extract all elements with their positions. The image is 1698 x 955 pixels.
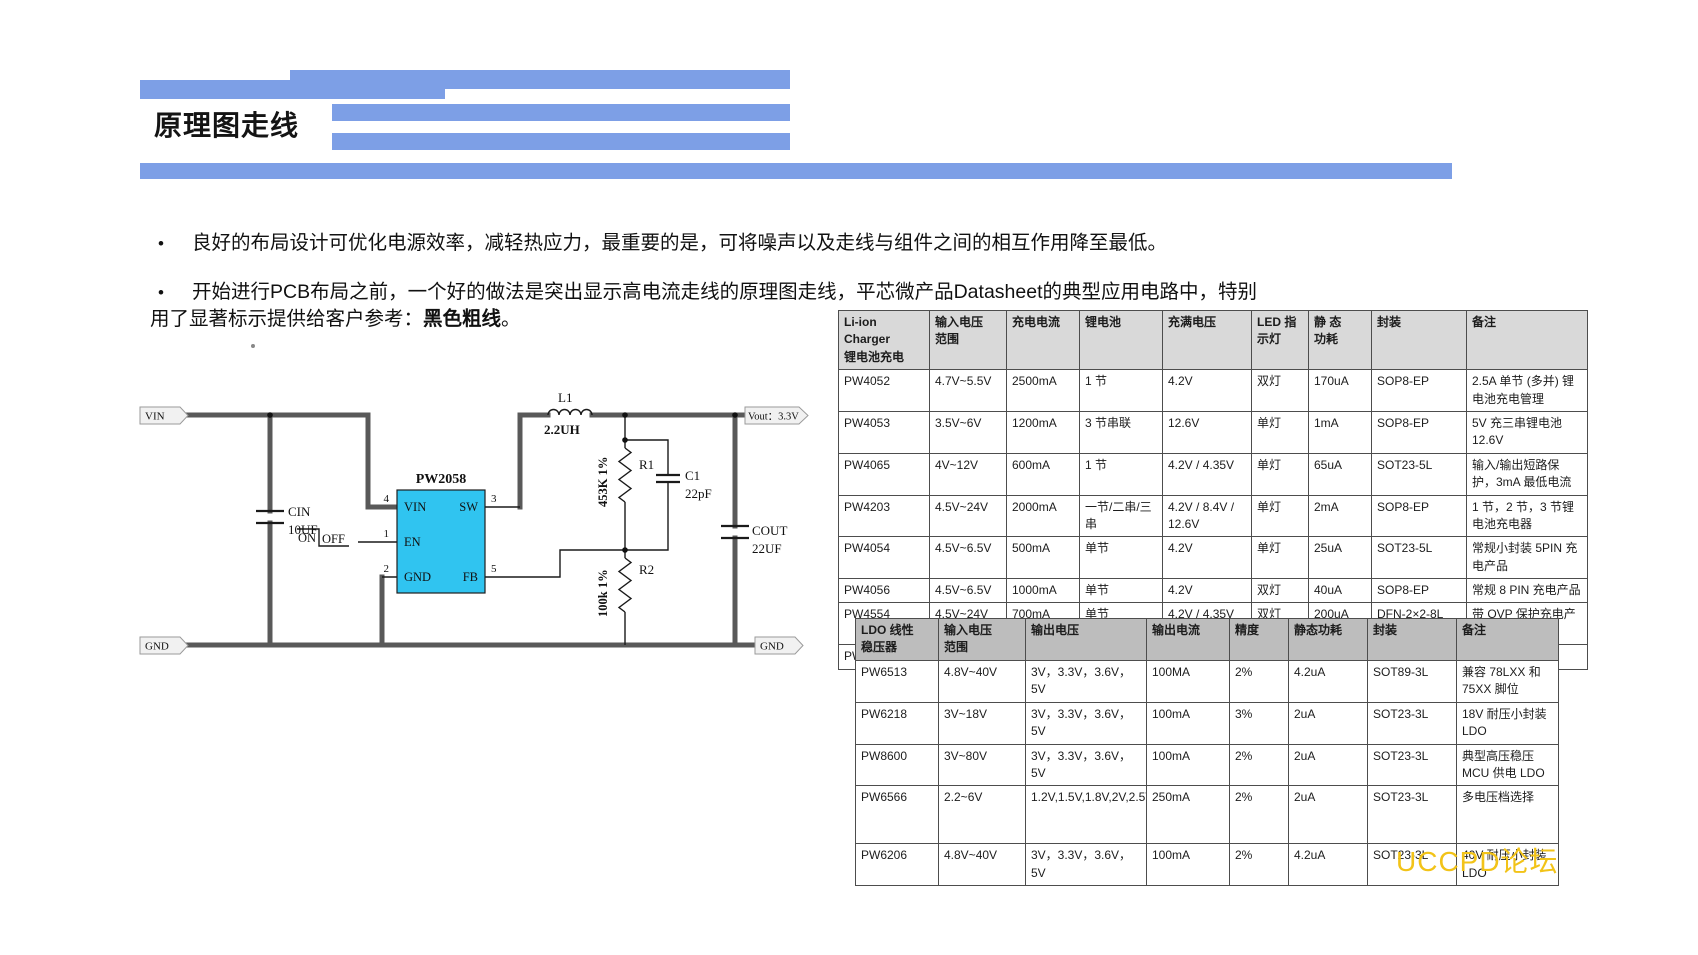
table-row: PW40533.5V~6V1200mA3 节串联12.6V单灯1mASOP8-E… — [839, 411, 1588, 453]
table-cell: 4.8V~40V — [939, 844, 1026, 886]
table-cell: 1mA — [1309, 411, 1372, 453]
table-cell: PW4052 — [839, 370, 930, 412]
table-cell: 3V，3.3V，3.6V，5V — [1026, 661, 1147, 703]
table-cell: 25uA — [1309, 537, 1372, 579]
table-cell: 4.2V / 8.4V / 12.6V — [1163, 495, 1252, 537]
c1-value-label: 22pF — [685, 486, 712, 501]
table-cell: PW8600 — [856, 744, 939, 786]
table-cell: 2% — [1230, 661, 1289, 703]
bullet-marker: • — [150, 279, 192, 306]
table-cell: 4V~12V — [930, 453, 1007, 495]
bullet-2-text-1: 开始进行PCB布局之前，一个好的做法是突出显示高电流走线的原理图走线，平芯微产品… — [192, 281, 1257, 303]
table-cell: 4.2V — [1163, 537, 1252, 579]
table-cell: SOT89-3L — [1368, 661, 1457, 703]
l1-ref-label: L1 — [558, 390, 572, 405]
table-cell: 单节 — [1080, 537, 1163, 579]
vout-port-label: Vout：3.3V — [748, 412, 799, 423]
cout-value-label: 22UF — [752, 541, 782, 556]
table-row: PW42034.5V~24V2000mA一节/二串/三串4.2V / 8.4V … — [839, 495, 1588, 537]
resistor-r1-symbol — [619, 448, 631, 502]
chip-name: PW2058 — [416, 472, 467, 487]
table-cell: SOT23-3L — [1368, 786, 1457, 844]
table-cell: 5V 充三串锂电池 12.6V — [1467, 411, 1588, 453]
cout-ref-label: COUT — [752, 523, 787, 538]
pin-label-sw: SW — [459, 500, 478, 514]
table-cell: PW6566 — [856, 786, 939, 844]
c1-ref-label: C1 — [685, 468, 700, 483]
table-cell: 4.2V — [1163, 370, 1252, 412]
r2-ref-label: R2 — [639, 562, 654, 577]
table-cell: 多电压档选择 — [1457, 786, 1559, 844]
table-cell: 2000mA — [1007, 495, 1080, 537]
table-cell: 1000mA — [1007, 579, 1080, 603]
table-row: PW65662.2~6V1.2V,1.5V,1.8V,2V,2.5V,2.8V,… — [856, 786, 1559, 844]
column-header: 精度 — [1230, 619, 1289, 661]
table-cell: PW4056 — [839, 579, 930, 603]
table-cell: 2uA — [1289, 786, 1368, 844]
table-cell: 2% — [1230, 844, 1289, 886]
table-row: PW40544.5V~6.5V500mA单节4.2V单灯25uASOT23-5L… — [839, 537, 1588, 579]
bullet-2-line-1: •开始进行PCB布局之前，一个好的做法是突出显示高电流走线的原理图走线，平芯微产… — [150, 279, 1510, 306]
column-header: LED 指 示灯 — [1252, 311, 1309, 370]
bullet-1-text: 良好的布局设计可优化电源效率，减轻热应力，最重要的是，可将噪声以及走线与组件之间… — [192, 232, 1167, 254]
table-cell: PW4054 — [839, 537, 930, 579]
table-cell: 兼容 78LXX 和 75XX 脚位 — [1457, 661, 1559, 703]
table-cell: 2mA — [1309, 495, 1372, 537]
header-row: Li-ion Charger 锂电池充电输入电压 范围充电电流锂电池充满电压LE… — [839, 311, 1588, 370]
column-header: 静态功耗 — [1289, 619, 1368, 661]
table-cell: 600mA — [1007, 453, 1080, 495]
table-cell: 4.2V / 4.35V — [1163, 453, 1252, 495]
pin-label-fb: FB — [463, 570, 478, 584]
table-cell: 3V，3.3V，3.6V，5V — [1026, 844, 1147, 886]
table-cell: 3V，3.3V，3.6V，5V — [1026, 702, 1147, 744]
vin-port-label: VIN — [145, 411, 165, 423]
bullet-2-text-end: 。 — [501, 308, 521, 330]
table-cell: 3V~18V — [939, 702, 1026, 744]
column-header: 输入电压 范围 — [939, 619, 1026, 661]
column-header: LDO 线性 稳压器 — [856, 619, 939, 661]
table-cell: 250mA — [1147, 786, 1230, 844]
table-cell: 单灯 — [1252, 495, 1309, 537]
table-cell: 常规 8 PIN 充电产品 — [1467, 579, 1588, 603]
pin-number-3: 3 — [491, 493, 497, 505]
enable-off-label: OFF — [322, 532, 345, 546]
bullet-1: •良好的布局设计可优化电源效率，减轻热应力，最重要的是，可将噪声以及走线与组件之… — [150, 230, 1510, 257]
gnd-right-port-label: GND — [760, 641, 784, 653]
inductor-symbol — [548, 410, 592, 416]
column-header: Li-ion Charger 锂电池充电 — [839, 311, 930, 370]
table-cell: 100mA — [1147, 744, 1230, 786]
table-cell: 3.5V~6V — [930, 411, 1007, 453]
deco-bar-bottom — [140, 163, 1452, 179]
table-cell: 4.7V~5.5V — [930, 370, 1007, 412]
table-row: PW86003V~80V3V，3.3V，3.6V，5V100mA2%2uASOT… — [856, 744, 1559, 786]
deco-bar-mid-1 — [332, 104, 790, 121]
table-cell: 65uA — [1309, 453, 1372, 495]
r1-value-label: 453K 1% — [596, 457, 610, 507]
table-cell: 12.6V — [1163, 411, 1252, 453]
table-cell: PW6513 — [856, 661, 939, 703]
table-cell: PW4053 — [839, 411, 930, 453]
table-cell: SOP8-EP — [1372, 495, 1467, 537]
table-cell: 4.5V~6.5V — [930, 579, 1007, 603]
table-cell: 500mA — [1007, 537, 1080, 579]
cap-c1-symbol — [656, 475, 680, 482]
table-cell: 100mA — [1147, 844, 1230, 886]
table-cell: 18V 耐压小封装 LDO — [1457, 702, 1559, 744]
table-cell: 4.2uA — [1289, 844, 1368, 886]
r1-ref-label: R1 — [639, 457, 654, 472]
table-cell: 3V，3.3V，3.6V，5V — [1026, 744, 1147, 786]
table-cell: 单灯 — [1252, 453, 1309, 495]
pin-label-en: EN — [404, 535, 421, 549]
table-cell: PW6218 — [856, 702, 939, 744]
liion-table-container: Li-ion Charger 锂电池充电输入电压 范围充电电流锂电池充满电压LE… — [838, 310, 1588, 670]
pin-label-gnd: GND — [404, 570, 431, 584]
table-cell: PW4203 — [839, 495, 930, 537]
l1-value-label: 2.2UH — [544, 422, 580, 437]
table-cell: SOP8-EP — [1372, 579, 1467, 603]
table-cell: 3V~80V — [939, 744, 1026, 786]
liion-charger-table: Li-ion Charger 锂电池充电输入电压 范围充电电流锂电池充满电压LE… — [838, 310, 1588, 670]
table-cell: 输入/输出短路保护，3mA 最低电流 — [1467, 453, 1588, 495]
table-cell: 1.2V,1.5V,1.8V,2V,2.5V,2.8V,3V,3.3V,3.6V… — [1026, 786, 1147, 844]
deco-bar-mid-2 — [332, 133, 790, 150]
cin-value-label: 10UF — [288, 522, 318, 537]
table-cell: 双灯 — [1252, 370, 1309, 412]
bullet-2-text-2: 用了显著标示提供给客户参考： — [150, 308, 423, 330]
table-cell: 1 节 — [1080, 370, 1163, 412]
bullet-marker: • — [150, 230, 192, 257]
column-header: 备注 — [1467, 311, 1588, 370]
table-cell: PW6206 — [856, 844, 939, 886]
table-cell: 2.5A 单节 (多并) 锂电池充电管理 — [1467, 370, 1588, 412]
circuit-schematic: VIN Vout：3.3V GND GND PW2058 VIN SW EN G… — [128, 385, 818, 665]
slide: 原理图走线 •良好的布局设计可优化电源效率，减轻热应力，最重要的是，可将噪声以及… — [0, 0, 1698, 955]
table-cell: 4.5V~6.5V — [930, 537, 1007, 579]
r2-value-label: 100k 1% — [596, 569, 610, 617]
table-cell: 1200mA — [1007, 411, 1080, 453]
stray-mark — [251, 344, 255, 348]
bullet-2-bold-text: 黑色粗线 — [423, 308, 501, 330]
table-cell: SOT23-3L — [1368, 744, 1457, 786]
watermark: UCCPD论坛 — [1396, 840, 1559, 880]
table-cell: 4.5V~24V — [930, 495, 1007, 537]
column-header: 封装 — [1372, 311, 1467, 370]
table-cell: 单灯 — [1252, 537, 1309, 579]
table-cell: SOT23-3L — [1368, 702, 1457, 744]
column-header: 封装 — [1368, 619, 1457, 661]
table-cell: 2uA — [1289, 744, 1368, 786]
table-cell: 2% — [1230, 786, 1289, 844]
table-cell: 4.2uA — [1289, 661, 1368, 703]
table-cell: 100mA — [1147, 702, 1230, 744]
table-cell: PW4065 — [839, 453, 930, 495]
table-cell: 4.8V~40V — [939, 661, 1026, 703]
table-cell: SOT23-5L — [1372, 453, 1467, 495]
table-row: PW40564.5V~6.5V1000mA单节4.2V双灯40uASOP8-EP… — [839, 579, 1588, 603]
table-cell: 1 节 — [1080, 453, 1163, 495]
table-cell: 2500mA — [1007, 370, 1080, 412]
column-header: 静 态 功耗 — [1309, 311, 1372, 370]
pin-label-vin: VIN — [404, 500, 426, 514]
column-header: 充满电压 — [1163, 311, 1252, 370]
table-cell: SOT23-5L — [1372, 537, 1467, 579]
gnd-left-port-label: GND — [145, 641, 169, 653]
table-cell: 1 节，2 节，3 节锂电池充电器 — [1467, 495, 1588, 537]
table-cell: 170uA — [1309, 370, 1372, 412]
table-cell: 40uA — [1309, 579, 1372, 603]
table-cell: 3 节串联 — [1080, 411, 1163, 453]
table-cell: 双灯 — [1252, 579, 1309, 603]
column-header: 输出电压 — [1026, 619, 1147, 661]
table-cell: 2.2~6V — [939, 786, 1026, 844]
table-cell: 单灯 — [1252, 411, 1309, 453]
table-cell: SOP8-EP — [1372, 411, 1467, 453]
table-cell: 单节 — [1080, 579, 1163, 603]
resistor-r2-symbol — [619, 558, 631, 612]
pin-number-2: 2 — [384, 563, 390, 575]
deco-bar-top-right — [290, 70, 790, 89]
table-cell: SOP8-EP — [1372, 370, 1467, 412]
column-header: 输出电流 — [1147, 619, 1230, 661]
column-header: 备注 — [1457, 619, 1559, 661]
column-header: 充电电流 — [1007, 311, 1080, 370]
table-cell: 一节/二串/三串 — [1080, 495, 1163, 537]
pin-number-5: 5 — [491, 563, 497, 575]
table-cell: 常规小封装 5PIN 充电产品 — [1467, 537, 1588, 579]
table-cell: 2% — [1230, 744, 1289, 786]
pin-number-4: 4 — [384, 493, 390, 505]
column-header: 锂电池 — [1080, 311, 1163, 370]
cin-ref-label: CIN — [288, 504, 311, 519]
table-row: PW62183V~18V3V，3.3V，3.6V，5V100mA3%2uASOT… — [856, 702, 1559, 744]
header-row: LDO 线性 稳压器输入电压 范围输出电压输出电流精度静态功耗封装备注 — [856, 619, 1559, 661]
table-row: PW40524.7V~5.5V2500mA1 节4.2V双灯170uASOP8-… — [839, 370, 1588, 412]
table-row: PW40654V~12V600mA1 节4.2V / 4.35V单灯65uASO… — [839, 453, 1588, 495]
table-cell: 100MA — [1147, 661, 1230, 703]
table-cell: 2uA — [1289, 702, 1368, 744]
table-row: PW65134.8V~40V3V，3.3V，3.6V，5V100MA2%4.2u… — [856, 661, 1559, 703]
table-cell: 4.2V — [1163, 579, 1252, 603]
pin-number-1: 1 — [384, 528, 390, 540]
page-title: 原理图走线 — [154, 104, 299, 144]
table-cell: 典型高压稳压 MCU 供电 LDO — [1457, 744, 1559, 786]
column-header: 输入电压 范围 — [930, 311, 1007, 370]
table-cell: 3% — [1230, 702, 1289, 744]
